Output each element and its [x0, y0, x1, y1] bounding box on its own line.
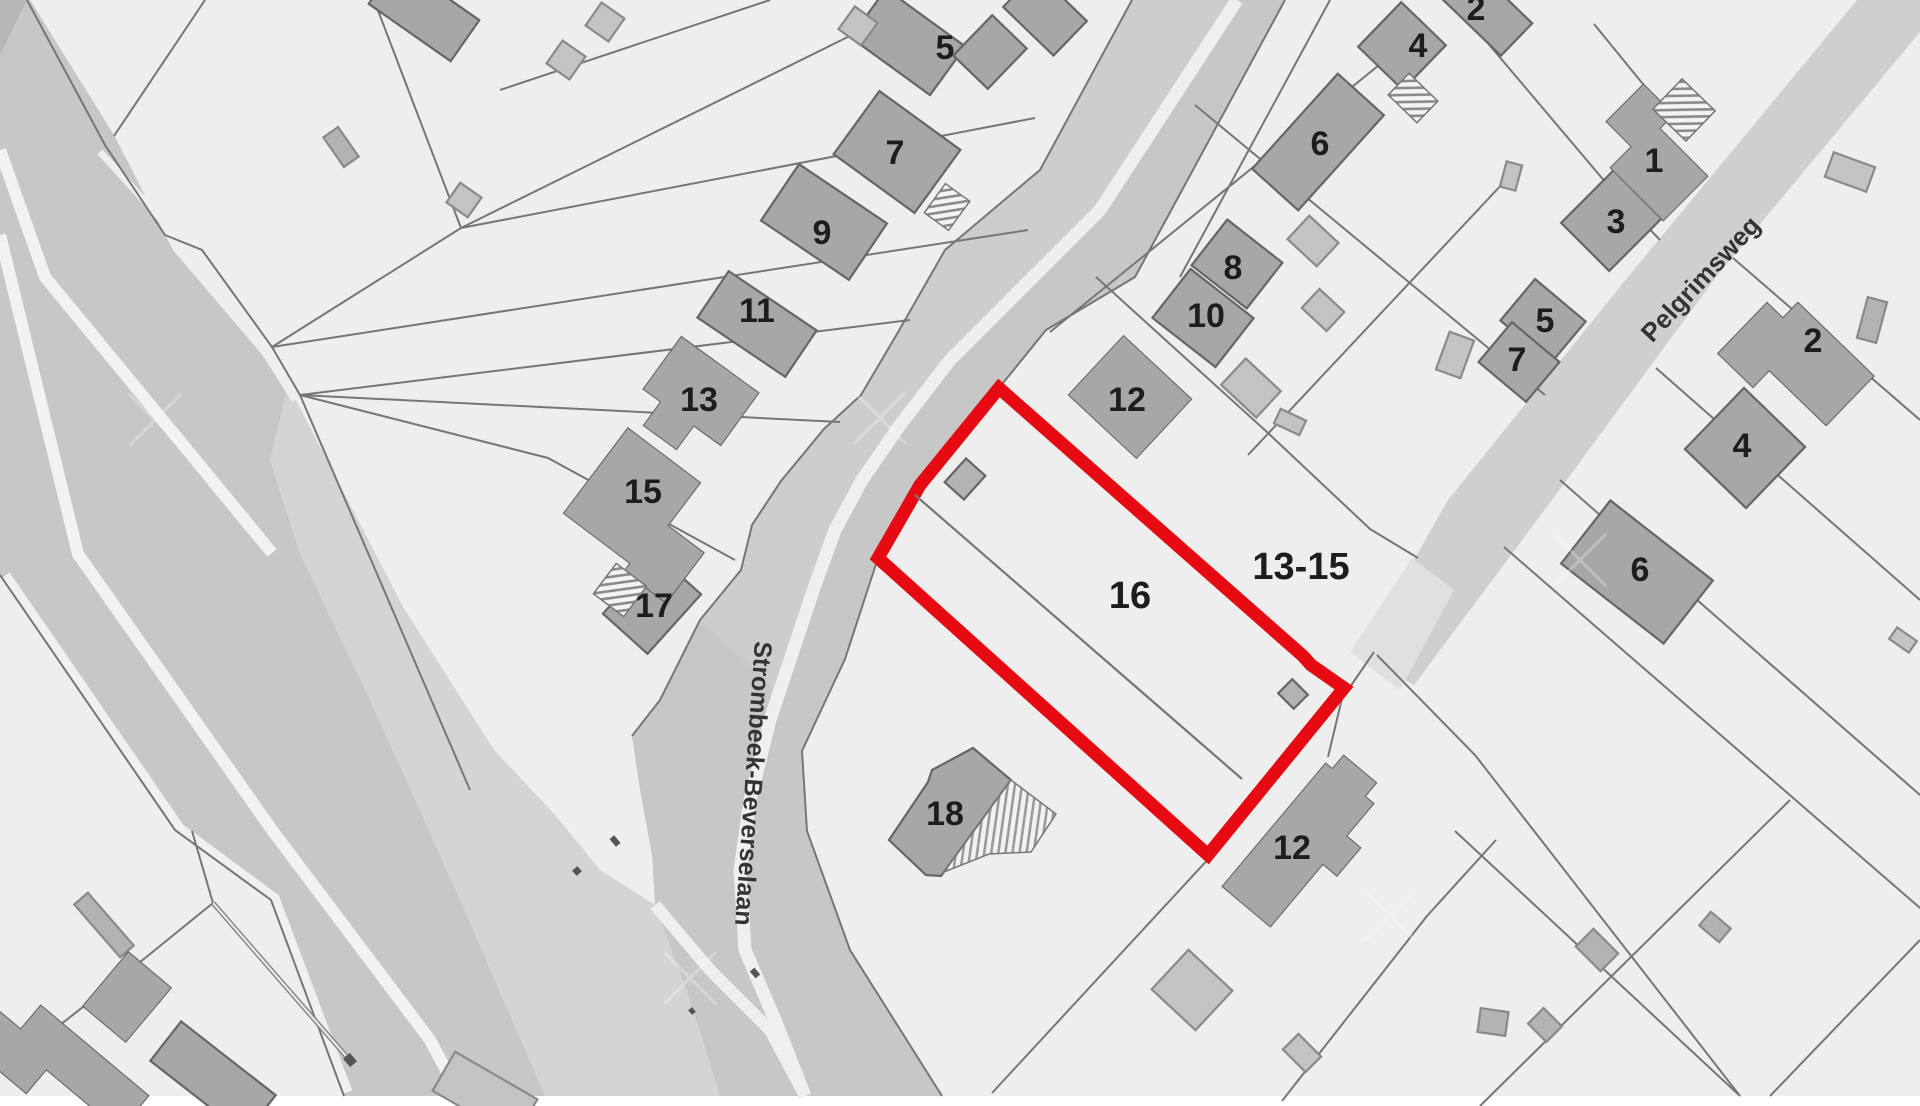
svg-text:5: 5 [936, 29, 955, 67]
svg-text:13: 13 [680, 381, 718, 419]
svg-text:5: 5 [1536, 302, 1555, 340]
svg-text:18: 18 [926, 795, 964, 833]
svg-text:11: 11 [739, 292, 775, 330]
svg-text:12: 12 [1108, 381, 1146, 419]
svg-text:15: 15 [624, 473, 662, 511]
svg-text:4: 4 [1733, 427, 1752, 465]
svg-text:10: 10 [1187, 297, 1225, 335]
svg-text:7: 7 [886, 134, 905, 172]
svg-text:3: 3 [1607, 203, 1626, 241]
svg-text:4: 4 [1409, 27, 1428, 65]
svg-text:17: 17 [635, 587, 673, 625]
svg-text:2: 2 [1804, 322, 1823, 360]
svg-text:6: 6 [1311, 125, 1330, 163]
svg-text:12: 12 [1273, 829, 1311, 867]
svg-text:7: 7 [1508, 341, 1527, 379]
svg-text:9: 9 [813, 214, 832, 252]
svg-text:13-15: 13-15 [1252, 546, 1349, 588]
svg-text:6: 6 [1631, 551, 1650, 589]
svg-text:16: 16 [1109, 575, 1151, 617]
svg-text:8: 8 [1224, 249, 1243, 287]
svg-text:1: 1 [1645, 142, 1664, 180]
svg-text:2: 2 [1467, 0, 1486, 28]
